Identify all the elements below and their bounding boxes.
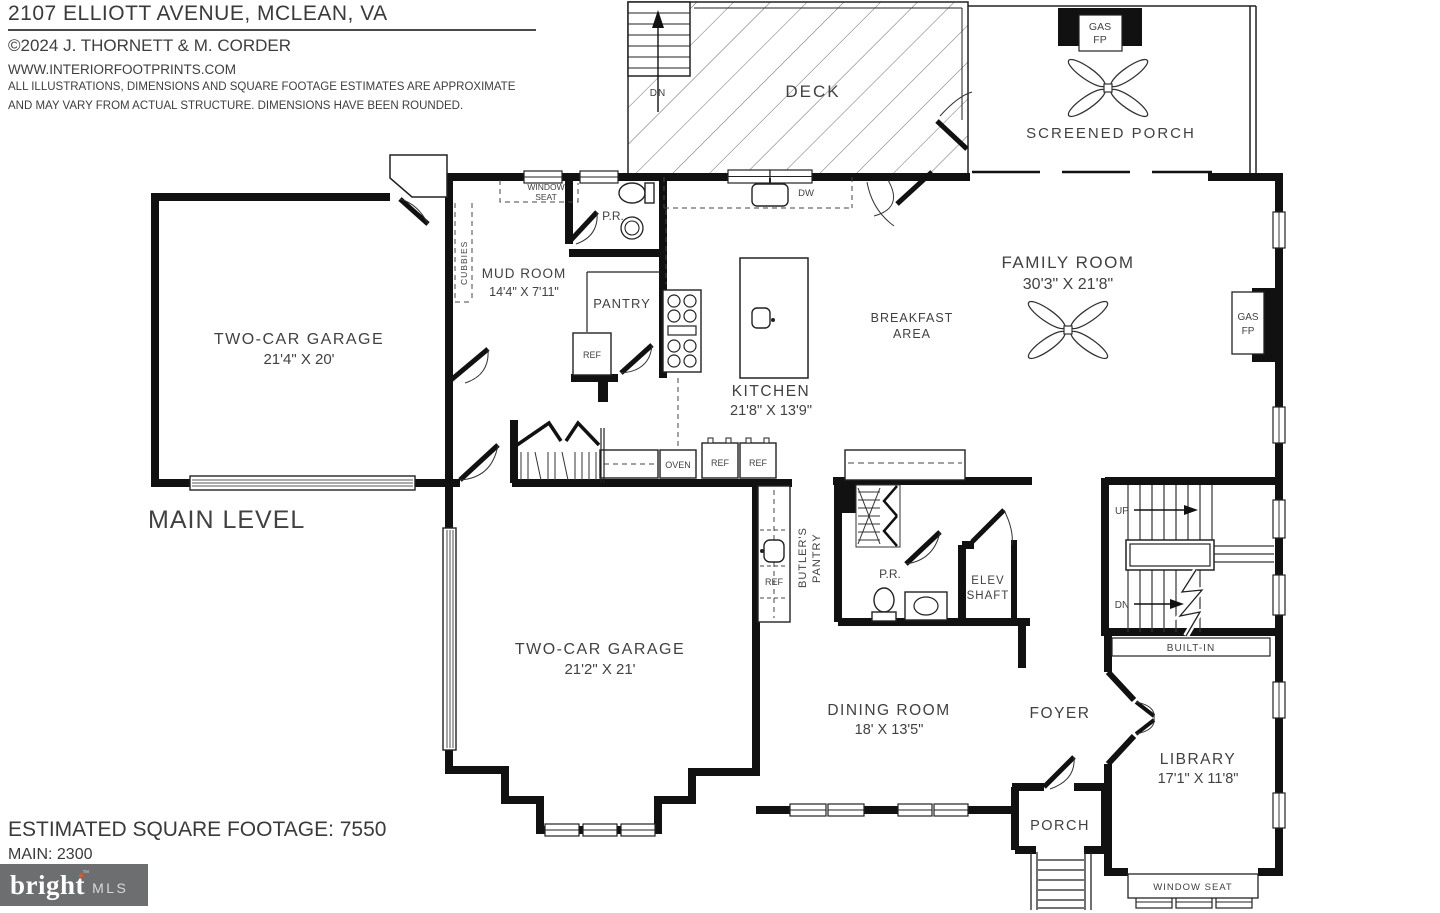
wall-tab bbox=[598, 380, 608, 402]
foyer-label: FOYER bbox=[1030, 705, 1091, 722]
family-room-dims: 30'3" X 21'8" bbox=[1023, 276, 1113, 293]
hall-closet bbox=[460, 423, 604, 483]
website-line: WWW.INTERIORFOOTPRINTS.COM bbox=[8, 62, 536, 77]
porch-gas-fireplace-icon: GAS FP bbox=[1058, 8, 1142, 51]
copyright-line: ©2024 J. THORNETT & M. CORDER bbox=[8, 36, 536, 56]
logo-brand-text: bright bbox=[10, 870, 85, 901]
deck-dn-label: DN bbox=[650, 88, 666, 99]
mud-room-dims: 14'4" X 7'11" bbox=[489, 285, 559, 299]
logo-suffix-text: MLS bbox=[92, 880, 128, 896]
disclaimer-line-1: ALL ILLUSTRATIONS, DIMENSIONS AND SQUARE… bbox=[8, 80, 536, 96]
svg-text:GAS: GAS bbox=[1089, 21, 1111, 33]
front-door bbox=[1044, 757, 1074, 789]
svg-text:FP: FP bbox=[1242, 326, 1255, 337]
window-seat-top-label-1: WINDOW bbox=[527, 182, 564, 192]
kitchen: DW KITCHEN 21'8" X 13'9" bbox=[600, 177, 894, 478]
svg-text:REF: REF bbox=[749, 458, 768, 468]
butlers-pantry-label-2: PANTRY bbox=[811, 533, 823, 583]
garage-lower-label: TWO-CAR GARAGE bbox=[515, 641, 685, 658]
shelf-closet bbox=[856, 485, 900, 547]
built-in-label: BUILT-IN bbox=[1167, 643, 1215, 654]
windows bbox=[524, 170, 1285, 908]
library-entry-doors bbox=[1136, 702, 1154, 734]
address-title: 2107 ELLIOTT AVENUE, MCLEAN, VA bbox=[8, 2, 536, 31]
dw-label: DW bbox=[798, 188, 814, 199]
floor-plan-drawing: DN DECK GAS FP bbox=[0, 0, 1440, 913]
svg-text:REF: REF bbox=[711, 458, 730, 468]
svg-text:REF: REF bbox=[765, 577, 784, 587]
round-sink-icon bbox=[621, 217, 643, 239]
plan-footer: ESTIMATED SQUARE FOOTAGE: 7550 MAIN: 230… bbox=[8, 818, 386, 864]
pantry-label: PANTRY bbox=[593, 296, 651, 311]
vanity-sink-icon bbox=[905, 592, 947, 620]
cooktop-icon bbox=[663, 290, 701, 372]
dining-room-dims: 18' X 13'5" bbox=[855, 722, 924, 738]
ceiling-fan-icon bbox=[1065, 56, 1151, 121]
window-seat-top-label-2: SEAT bbox=[535, 192, 557, 202]
butlers-pantry-label-1: BUTLER'S bbox=[797, 527, 809, 588]
pantry: PANTRY REF bbox=[573, 272, 660, 375]
kitchen-label: KITCHEN bbox=[732, 383, 811, 400]
elevator-shaft: ELEV SHAFT bbox=[967, 510, 1013, 602]
built-in: BUILT-IN bbox=[1112, 638, 1270, 656]
svg-text:OVEN: OVEN bbox=[665, 460, 691, 470]
mud-room-label: MUD ROOM bbox=[482, 266, 567, 281]
pr-top-label: P.R. bbox=[602, 209, 624, 223]
family-room-label: FAMILY ROOM bbox=[1001, 253, 1134, 272]
screened-porch-label: SCREENED PORCH bbox=[1026, 125, 1196, 142]
mud-room: WINDOW SEAT CUBBIES MUD ROOM 14'4" X 7'1… bbox=[390, 155, 578, 383]
porch-label: PORCH bbox=[1030, 818, 1090, 834]
estimated-sqft: ESTIMATED SQUARE FOOTAGE: 7550 bbox=[8, 818, 386, 842]
center-counter bbox=[845, 450, 965, 480]
family-room: BREAKFAST AREA FAMILY ROOM 30'3" X 21'8"… bbox=[871, 253, 1282, 362]
breakfast-label-2: AREA bbox=[893, 327, 931, 341]
entry-closet bbox=[390, 155, 447, 197]
wall-block bbox=[838, 485, 856, 513]
library-dims: 17'1" X 11'8" bbox=[1158, 771, 1239, 787]
disclaimer-line-2: AND MAY VARY FROM ACTUAL STRUCTURE. DIME… bbox=[8, 99, 536, 115]
powder-room-top: P.R. bbox=[571, 183, 654, 244]
ceiling-fan-icon bbox=[1025, 298, 1111, 363]
elev-label-2: SHAFT bbox=[967, 590, 1010, 602]
toilet-icon bbox=[619, 183, 654, 203]
family-gas-fireplace-icon: GAS FP bbox=[1232, 288, 1282, 362]
garage-door-lower bbox=[443, 528, 456, 750]
porch-steps-icon bbox=[1031, 852, 1091, 910]
garage-door-upper bbox=[190, 476, 415, 490]
svg-text:FP: FP bbox=[1093, 34, 1106, 46]
svg-text:REF: REF bbox=[583, 350, 602, 360]
garage-upper-label: TWO-CAR GARAGE bbox=[214, 331, 384, 348]
cubbies-label: CUBBIES bbox=[459, 241, 469, 285]
stairs-dn-label: DN bbox=[1115, 600, 1129, 611]
garage-lower-dims: 21'2" X 21' bbox=[564, 661, 635, 678]
breakfast-label-1: BREAKFAST bbox=[871, 311, 954, 325]
elev-label-1: ELEV bbox=[971, 575, 1004, 587]
main-level-sqft: MAIN: 2300 bbox=[8, 846, 386, 864]
kitchen-dims: 21'8" X 13'9" bbox=[730, 403, 812, 419]
floor-plan-canvas: 2107 ELLIOTT AVENUE, MCLEAN, VA ©2024 J.… bbox=[0, 0, 1440, 913]
garage-upper-dims: 21'4" X 20' bbox=[263, 351, 334, 368]
stairs-up-label: UP bbox=[1115, 506, 1129, 517]
svg-text:GAS: GAS bbox=[1237, 312, 1258, 323]
library-window-seat: WINDOW SEAT bbox=[1128, 874, 1258, 898]
butlers-pantry: REF BUTLER'S PANTRY bbox=[758, 486, 823, 622]
plan-header: 2107 ELLIOTT AVENUE, MCLEAN, VA ©2024 J.… bbox=[8, 2, 536, 114]
window-seat-bottom-label: WINDOW SEAT bbox=[1153, 882, 1232, 893]
main-stairs-icon: UP DN bbox=[1115, 485, 1274, 636]
logo-tm: ™ bbox=[82, 870, 89, 877]
toilet-icon bbox=[872, 588, 896, 621]
library-label: LIBRARY bbox=[1160, 751, 1237, 768]
screened-porch: GAS FP SCREENED PORCH bbox=[968, 6, 1256, 178]
kitchen-island bbox=[740, 258, 808, 378]
main-level-label: MAIN LEVEL bbox=[148, 506, 305, 534]
pr-mid-label: P.R. bbox=[879, 567, 901, 581]
kitchen-counter-row: OVEN REF REF bbox=[600, 438, 776, 478]
dining-room-label: DINING ROOM bbox=[827, 702, 950, 719]
deck-label: DECK bbox=[785, 82, 840, 101]
bright-mls-logo: bright ✦ ™ MLS bbox=[0, 864, 148, 906]
